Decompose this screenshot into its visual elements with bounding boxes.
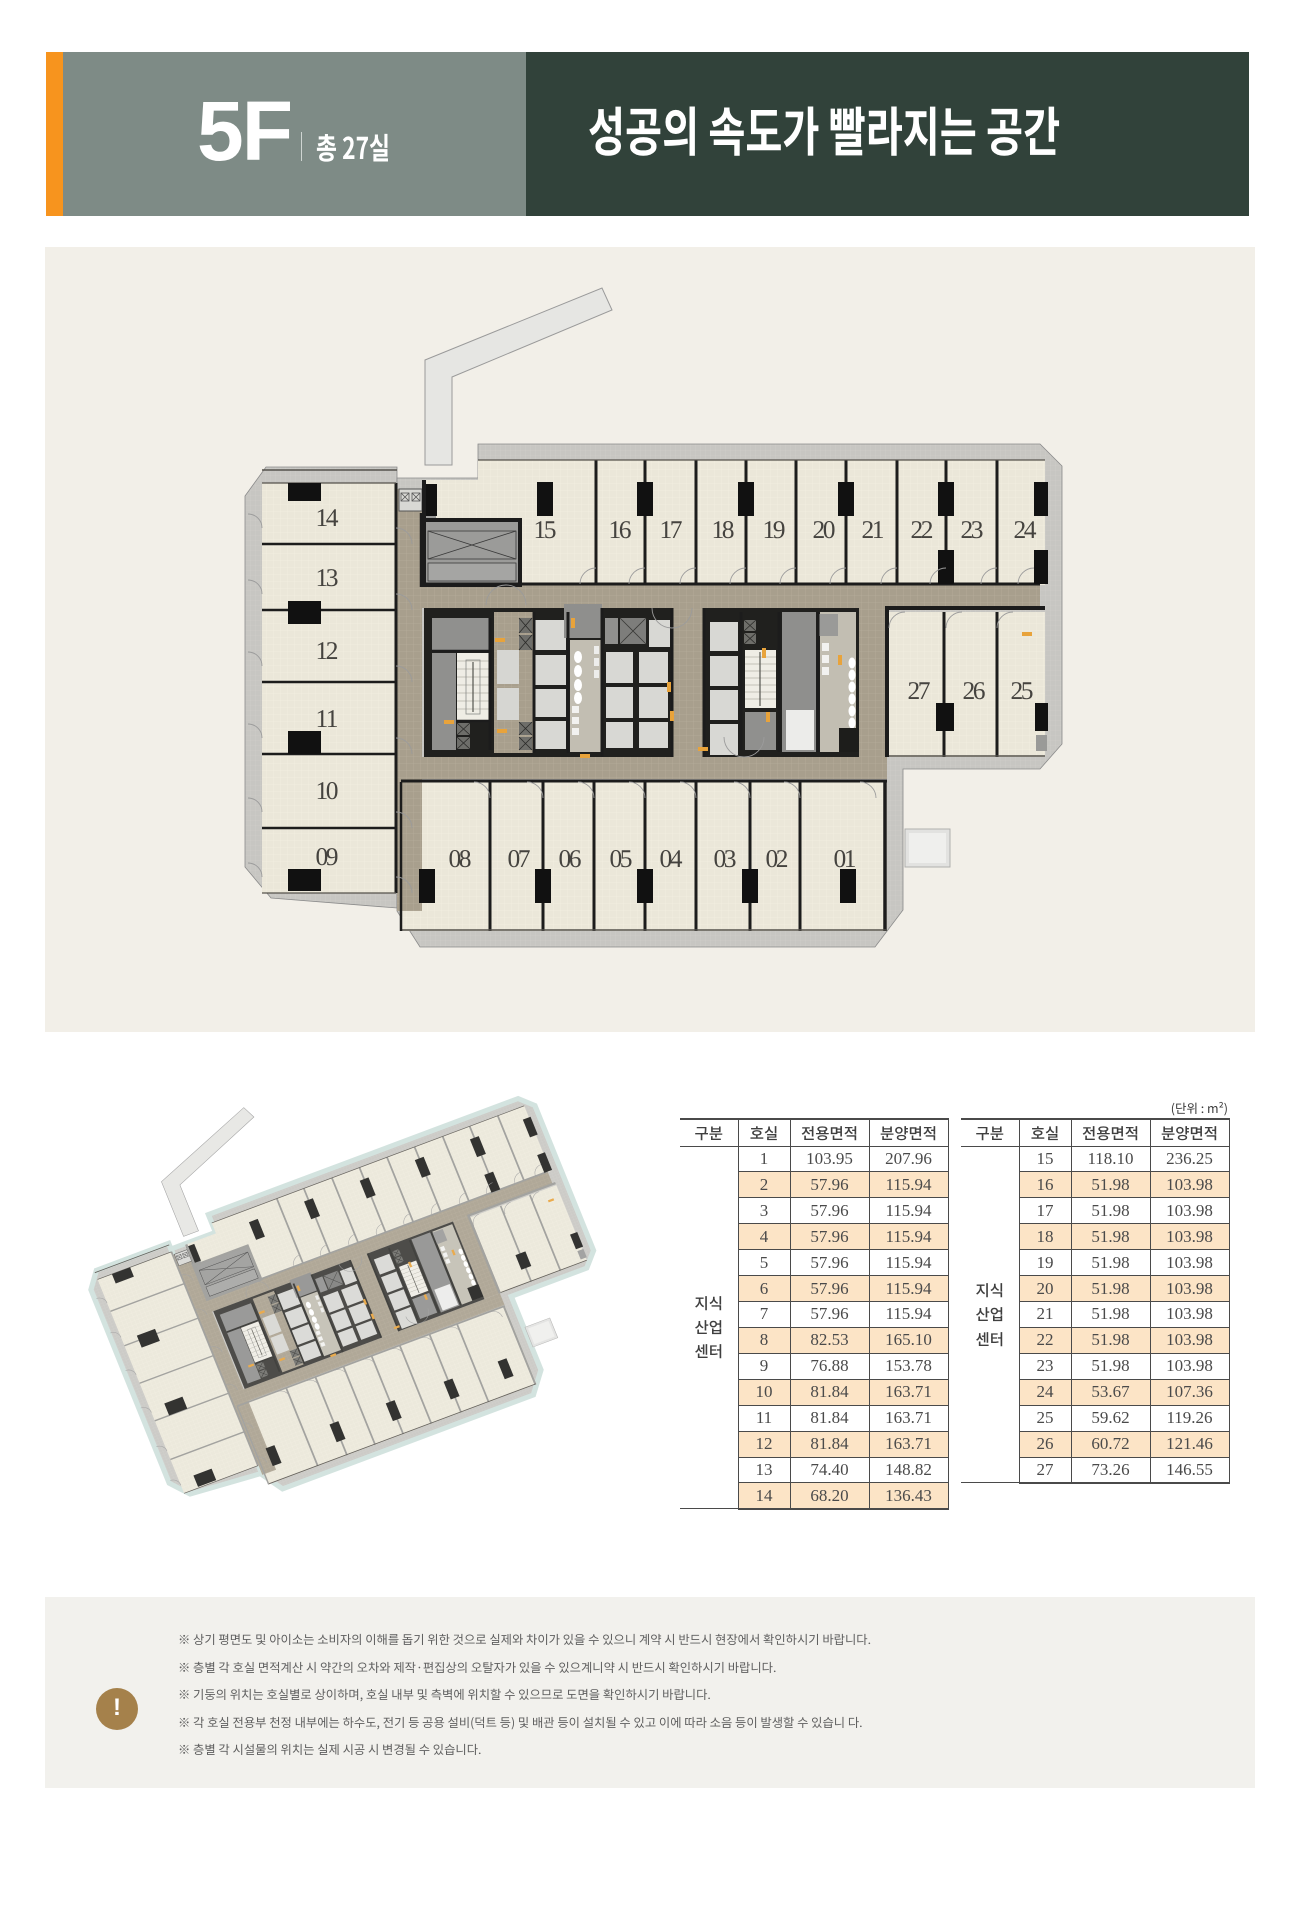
svg-text:13: 13 xyxy=(316,563,339,592)
svg-text:15: 15 xyxy=(534,515,557,544)
svg-text:14: 14 xyxy=(316,503,339,532)
svg-text:10: 10 xyxy=(316,776,339,805)
svg-text:09: 09 xyxy=(316,842,339,871)
svg-text:20: 20 xyxy=(813,515,836,544)
svg-text:21: 21 xyxy=(862,515,885,544)
svg-text:26: 26 xyxy=(963,676,986,705)
svg-text:16: 16 xyxy=(609,515,632,544)
svg-text:25: 25 xyxy=(1011,676,1034,705)
svg-text:11: 11 xyxy=(316,704,339,733)
svg-text:19: 19 xyxy=(763,515,786,544)
svg-text:23: 23 xyxy=(961,515,984,544)
svg-text:22: 22 xyxy=(911,515,934,544)
svg-text:24: 24 xyxy=(1014,515,1037,544)
svg-text:12: 12 xyxy=(316,636,339,665)
svg-text:07: 07 xyxy=(508,844,531,873)
svg-text:01: 01 xyxy=(834,844,857,873)
svg-text:27: 27 xyxy=(908,676,931,705)
svg-text:03: 03 xyxy=(714,844,737,873)
svg-text:08: 08 xyxy=(449,844,472,873)
svg-text:02: 02 xyxy=(766,844,789,873)
svg-text:18: 18 xyxy=(712,515,735,544)
svg-text:04: 04 xyxy=(660,844,683,873)
svg-text:06: 06 xyxy=(559,844,582,873)
svg-text:05: 05 xyxy=(610,844,633,873)
svg-text:17: 17 xyxy=(660,515,683,544)
